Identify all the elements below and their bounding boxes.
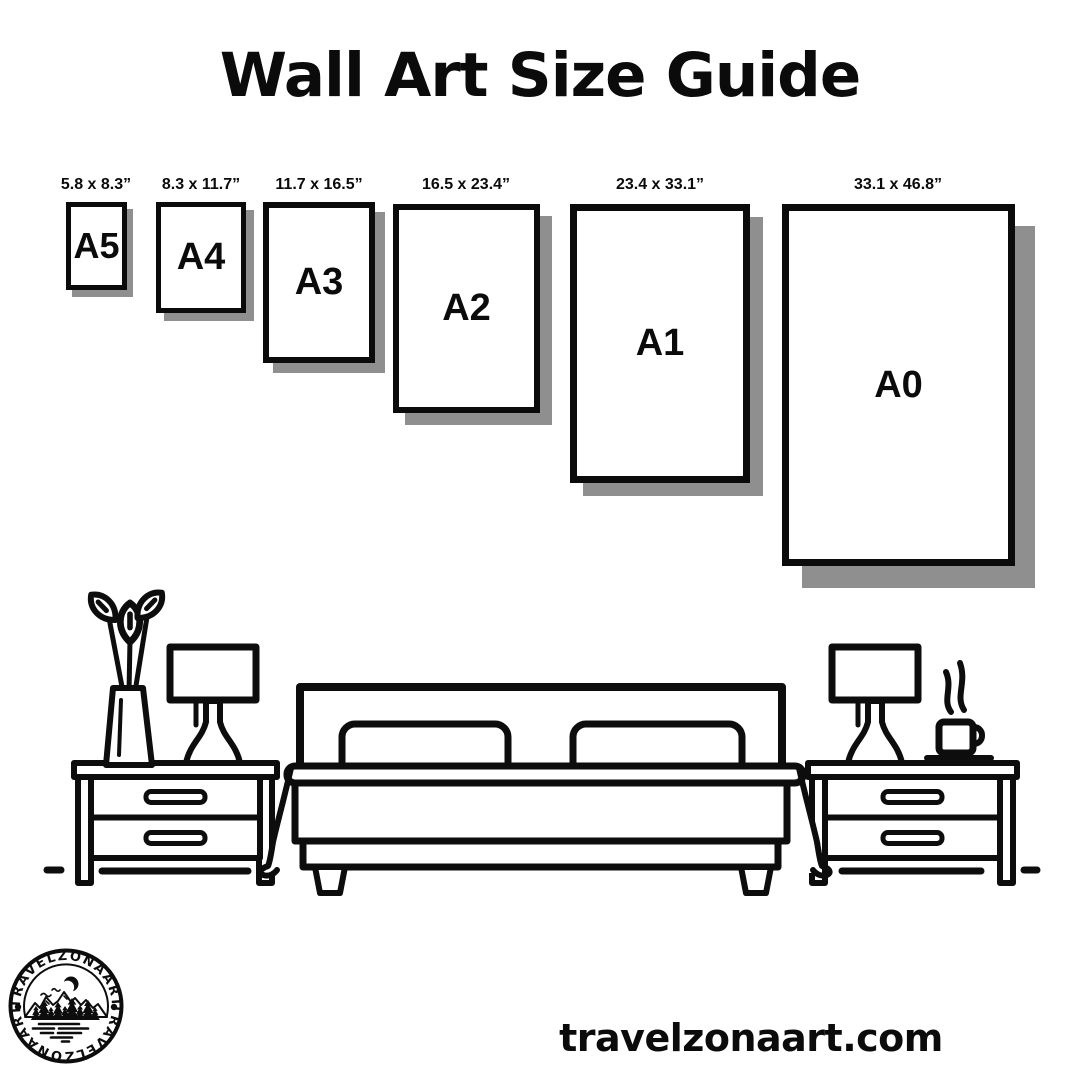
brand-logo: TRAVELZONAART TRAVELZONAART [4,944,128,1068]
poster-a3: A3 [263,202,375,363]
poster-a1: A1 [570,204,750,483]
plant [85,587,168,765]
poster-a4: A4 [156,202,246,313]
bed-leg-right [741,867,771,893]
lamp-right [832,647,918,763]
size-label-a1: 23.4 x 33.1” [616,176,704,194]
lamp-shade [832,647,918,700]
bed [287,687,803,893]
plant-stem [129,640,130,692]
website-url: travelzonaart.com [559,1016,943,1060]
vase-highlight [119,700,121,755]
page-title: Wall Art Size Guide [0,40,1080,111]
size-label-a3: 11.7 x 16.5” [275,176,362,194]
bed-leg-left [315,867,345,893]
poster-code-a1: A1 [636,322,685,365]
poster-a2: A2 [393,204,540,413]
size-label-a5: 5.8 x 8.3” [61,176,131,194]
vase [106,688,152,765]
size-label-a4: 8.3 x 11.7” [162,176,240,194]
bedroom-illustration [0,570,1080,900]
size-label-a2: 16.5 x 23.4” [422,176,510,194]
logo-dot-left [15,1004,21,1010]
poster-code-a5: A5 [73,225,119,267]
poster-code-a3: A3 [295,261,344,304]
logo-dot-right [111,1004,117,1010]
poster-a0: A0 [782,204,1015,566]
poster-code-a2: A2 [442,287,491,330]
poster-a5: A5 [66,202,127,290]
plant-leaf [85,589,122,626]
poster-code-a0: A0 [874,364,923,407]
nightstand-right [808,763,1017,883]
coffee-cup [927,663,991,758]
poster-code-a4: A4 [177,236,226,279]
plant-leaf [131,587,168,624]
lamp-shade [170,647,256,700]
steam [946,672,951,712]
cup-body [939,722,973,753]
size-label-a0: 33.1 x 46.8” [854,176,942,194]
lamp-left [170,647,256,763]
bed-panel [295,783,787,841]
bed-base [303,841,778,867]
nightstand-left [74,763,277,883]
steam [960,663,964,710]
